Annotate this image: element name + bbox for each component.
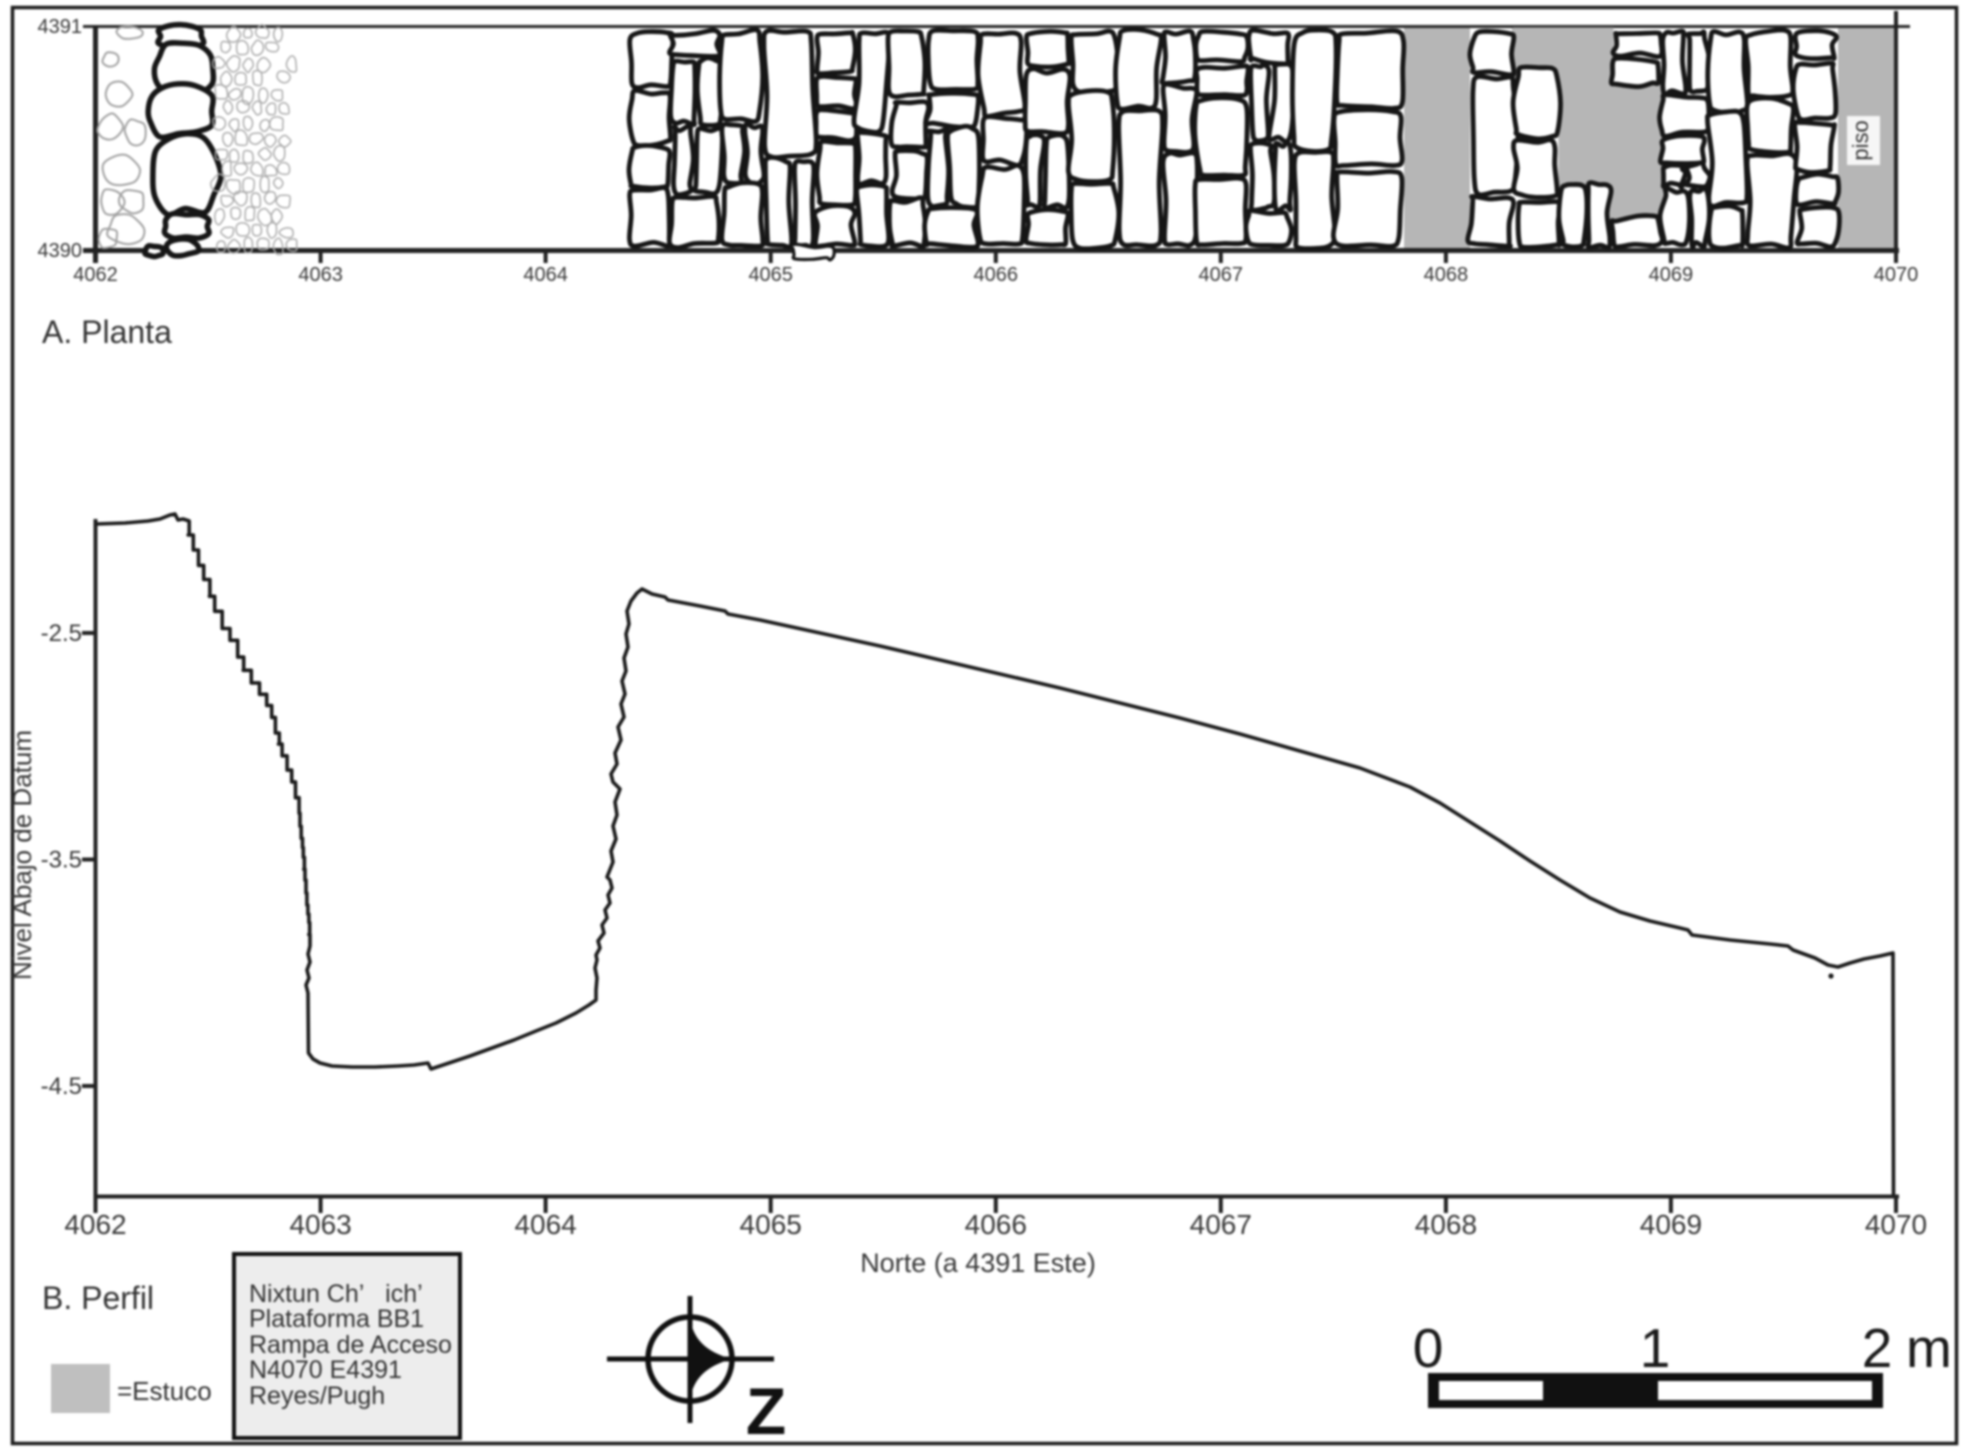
svg-text:Norte (a 4391 Este): Norte (a 4391 Este) [860, 1248, 1096, 1278]
svg-text:4067: 4067 [1199, 264, 1244, 286]
svg-text:-4.5: -4.5 [41, 1073, 82, 1100]
svg-text:4064: 4064 [523, 264, 568, 286]
svg-text:A. Planta: A. Planta [42, 314, 172, 350]
svg-text:4068: 4068 [1415, 1209, 1477, 1240]
svg-text:4063: 4063 [289, 1209, 351, 1240]
svg-text:4070: 4070 [1865, 1209, 1927, 1240]
svg-text:4064: 4064 [514, 1209, 576, 1240]
svg-text:=Estuco: =Estuco [117, 1376, 212, 1406]
svg-text:2: 2 [1862, 1317, 1893, 1379]
svg-text:4062: 4062 [73, 264, 118, 286]
svg-text:4069: 4069 [1649, 264, 1694, 286]
svg-text:4391: 4391 [38, 16, 83, 38]
svg-text:Nivel Abajo de Datum: Nivel Abajo de Datum [7, 730, 37, 980]
svg-text:Reyes/Pugh: Reyes/Pugh [249, 1382, 385, 1410]
svg-text:4067: 4067 [1190, 1209, 1252, 1240]
svg-text:4065: 4065 [740, 1209, 802, 1240]
svg-text:-2.5: -2.5 [41, 620, 82, 647]
svg-text:4069: 4069 [1640, 1209, 1702, 1240]
svg-text:Nixtun Ch’ ich’: Nixtun Ch’ ich’ [249, 1280, 423, 1308]
svg-text:Plataforma BB1: Plataforma BB1 [249, 1305, 424, 1333]
svg-text:piso: piso [1848, 120, 1873, 160]
svg-text:N4070 E4391: N4070 E4391 [249, 1356, 402, 1384]
svg-text:m: m [1906, 1317, 1952, 1379]
svg-text:4390: 4390 [38, 240, 83, 262]
svg-text:0: 0 [1413, 1317, 1444, 1379]
svg-text:-3.5: -3.5 [41, 847, 82, 874]
svg-text:4066: 4066 [974, 264, 1019, 286]
svg-text:Rampa de Acceso: Rampa de Acceso [249, 1331, 452, 1359]
svg-text:4063: 4063 [298, 264, 343, 286]
svg-text:4065: 4065 [748, 264, 793, 286]
svg-text:4070: 4070 [1874, 264, 1919, 286]
svg-text:Z: Z [746, 1374, 786, 1448]
svg-text:B. Perfil: B. Perfil [42, 1280, 154, 1316]
svg-text:4068: 4068 [1424, 264, 1469, 286]
svg-text:4066: 4066 [965, 1209, 1027, 1240]
svg-text:1: 1 [1640, 1317, 1671, 1379]
svg-text:4062: 4062 [64, 1209, 126, 1240]
